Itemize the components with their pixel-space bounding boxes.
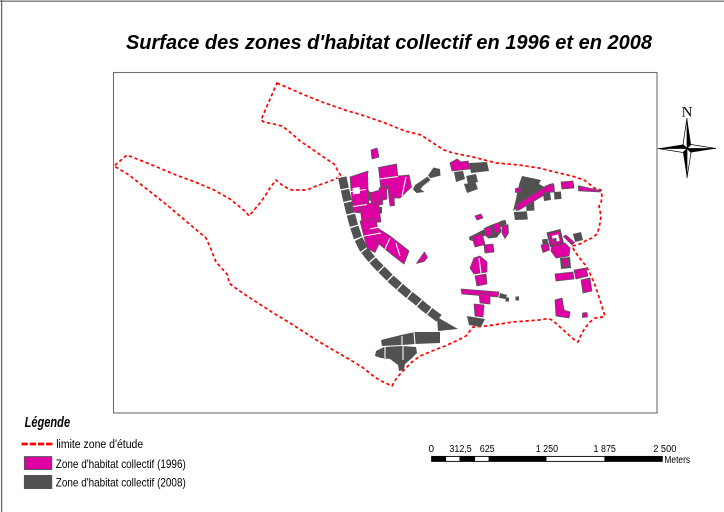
svg-text:Surface des zones d'habitat co: Surface des zones d'habitat collectif en… <box>126 32 653 54</box>
svg-text:Zone d'habitat collectif (2008: Zone d'habitat collectif (2008) <box>56 476 186 490</box>
svg-text:0: 0 <box>429 444 435 455</box>
svg-text:Meters: Meters <box>664 454 690 466</box>
svg-text:312,5: 312,5 <box>449 444 472 455</box>
svg-text:Zone d'habitat collectif (1996: Zone d'habitat collectif (1996) <box>56 457 186 471</box>
svg-text:625: 625 <box>480 444 495 455</box>
svg-text:Légende: Légende <box>25 415 71 431</box>
svg-text:1 875: 1 875 <box>594 444 617 455</box>
svg-text:1 250: 1 250 <box>536 444 559 455</box>
svg-text:limite zone d'étude: limite zone d'étude <box>56 439 143 451</box>
